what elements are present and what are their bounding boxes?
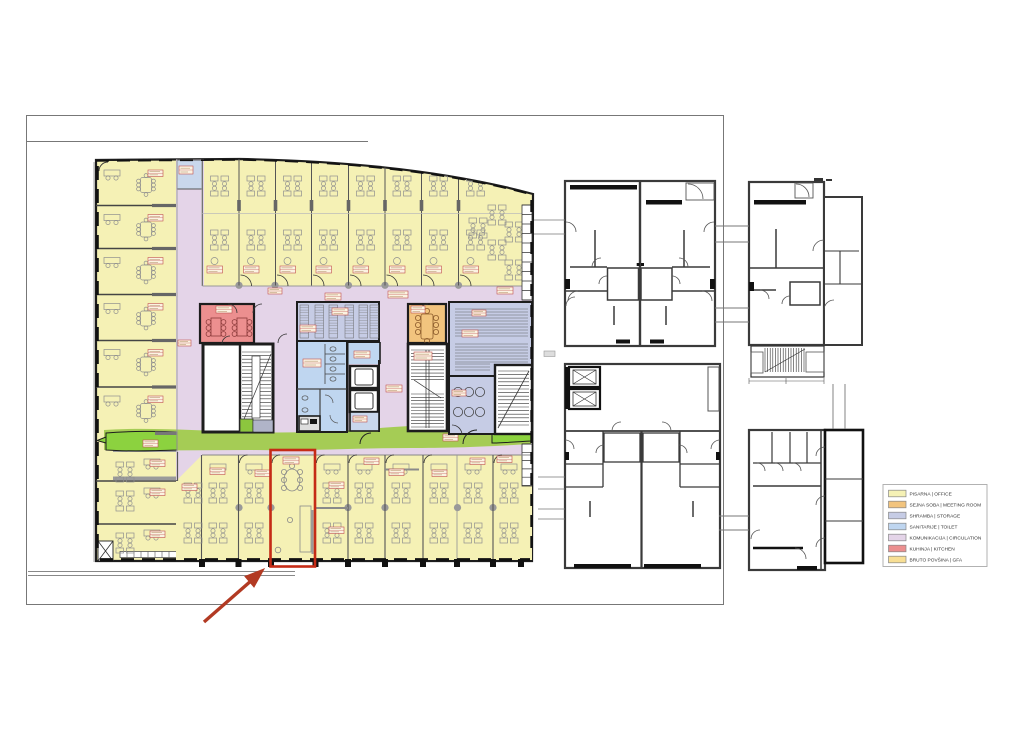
svg-text:PISARNA | OFFICE: PISARNA | OFFICE [910,492,952,498]
svg-text:SANITARIJE | TOILET: SANITARIJE | TOILET [910,525,958,531]
svg-text:SHRAMBA | STORAGE: SHRAMBA | STORAGE [910,514,961,520]
svg-text:SEJNA SOBA | MEETING ROOM: SEJNA SOBA | MEETING ROOM [910,503,982,509]
svg-text:KOMUNIKACIJA | CIRCULATION: KOMUNIKACIJA | CIRCULATION [910,536,982,542]
svg-text:KUHINJA | KITCHEN: KUHINJA | KITCHEN [910,547,956,553]
svg-text:BRUTO POVŠINA | GFA: BRUTO POVŠINA | GFA [910,557,963,564]
